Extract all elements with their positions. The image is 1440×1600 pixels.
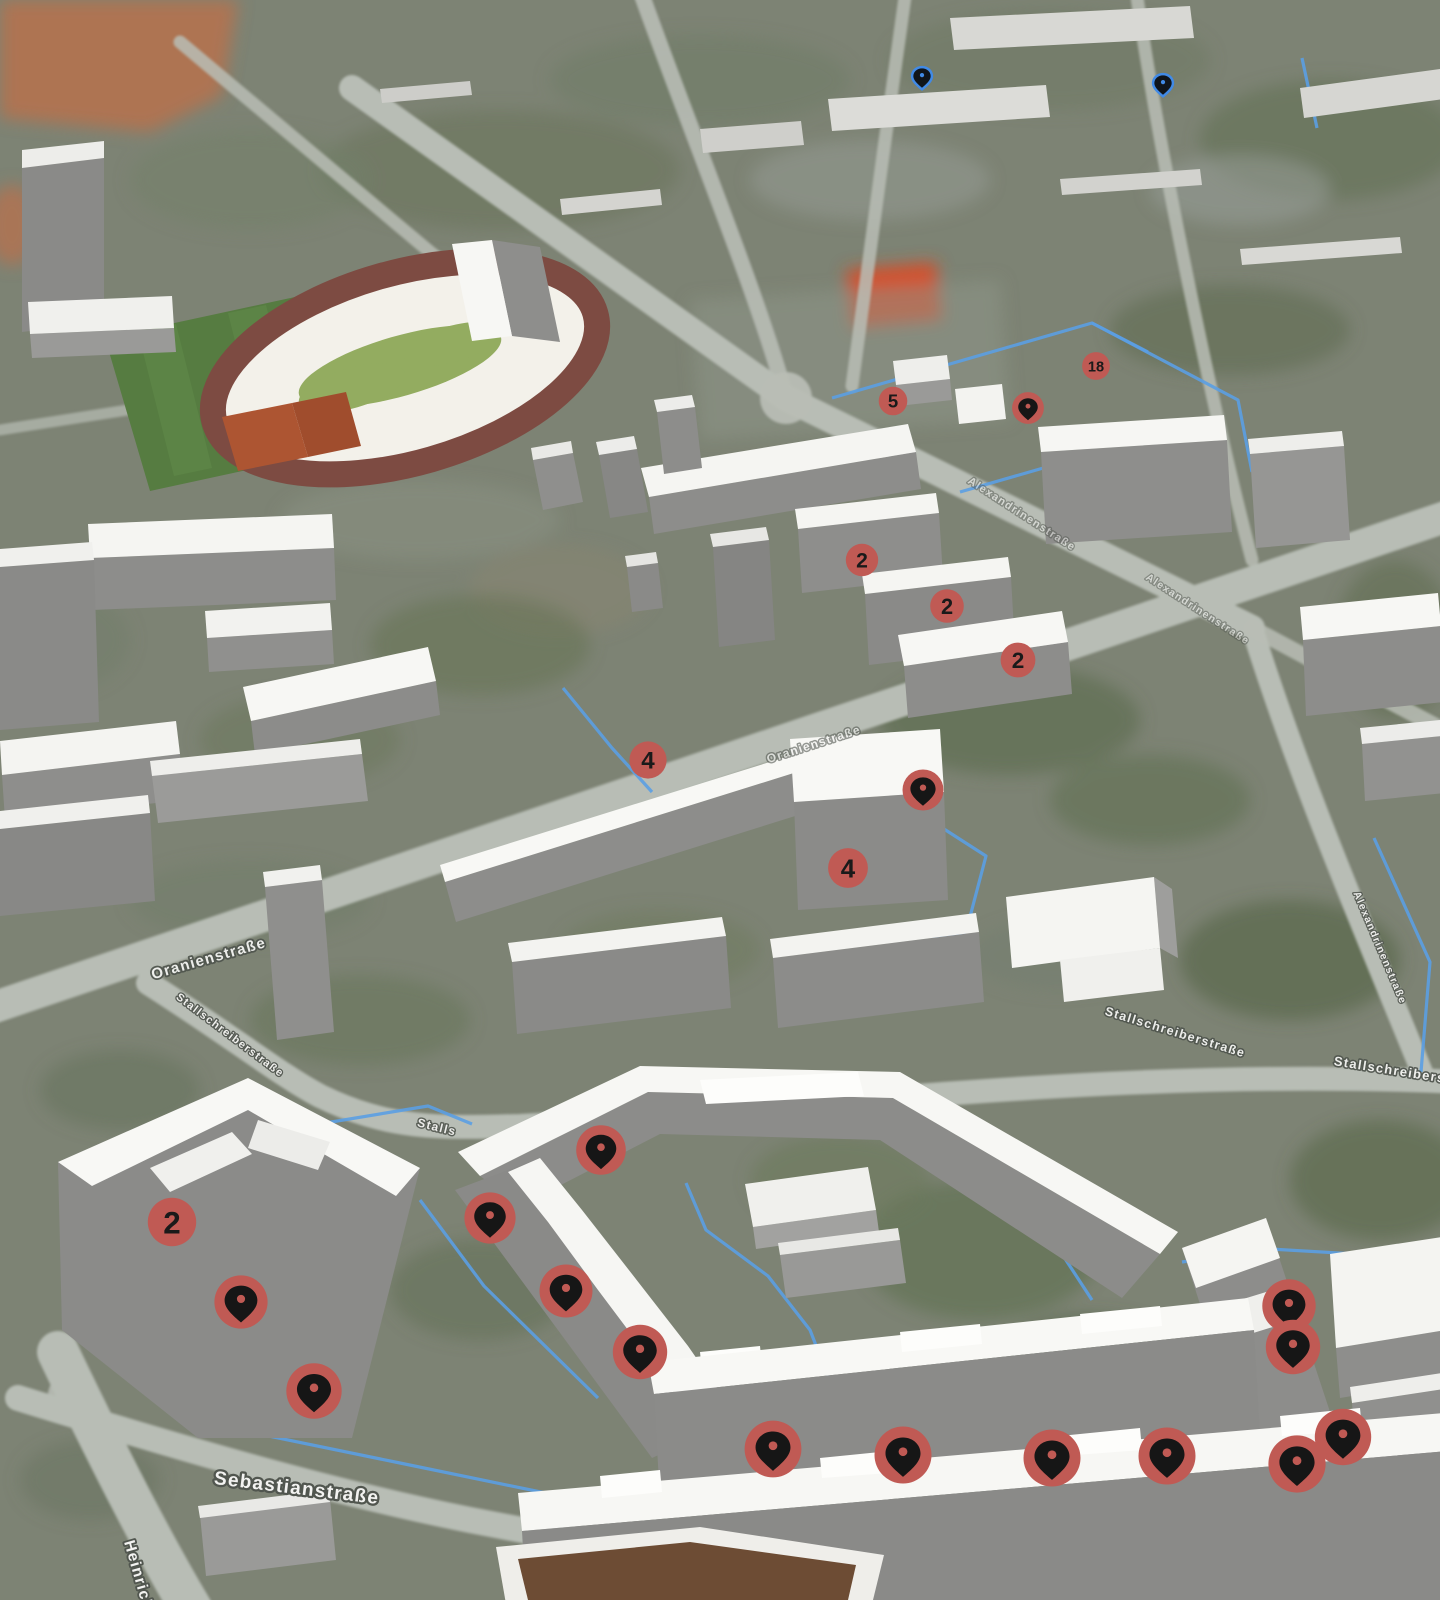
pin-marker[interactable] — [745, 1421, 802, 1478]
building-wall — [657, 407, 702, 474]
pin-dot — [636, 1345, 644, 1353]
pin-marker[interactable] — [875, 1427, 932, 1484]
pin-dot — [769, 1441, 778, 1450]
cluster-count: 2 — [1012, 648, 1025, 673]
pin-marker[interactable] — [214, 1275, 267, 1328]
building-roof — [955, 384, 1006, 424]
pin-dot — [1026, 404, 1031, 409]
ground-patch — [130, 130, 370, 230]
cluster-marker-4[interactable]: 4 — [828, 848, 868, 888]
blue-pin-dot — [920, 73, 924, 77]
cluster-count: 18 — [1088, 359, 1104, 375]
road-junction — [48, 1373, 92, 1417]
pin-marker[interactable] — [1012, 392, 1044, 424]
pin-dot — [1048, 1450, 1057, 1459]
map-viewport[interactable]: OranienstraßeOranienstraßeStallschreiber… — [0, 0, 1440, 1600]
cluster-count: 4 — [641, 748, 655, 775]
cluster-marker-18[interactable]: 18 — [1082, 352, 1110, 380]
pin-marker[interactable] — [1266, 1320, 1320, 1374]
pin-dot — [1293, 1456, 1302, 1465]
blue-pin-dot — [1161, 80, 1165, 84]
pin-dot — [1163, 1448, 1172, 1457]
building-roof — [28, 296, 174, 334]
building-wall — [0, 813, 155, 916]
pin-dot — [1289, 1340, 1297, 1348]
pin-marker[interactable] — [540, 1265, 593, 1318]
pin-dot — [1285, 1299, 1293, 1307]
building-wall — [90, 548, 336, 610]
pin-dot — [562, 1284, 570, 1292]
cluster-marker-4[interactable]: 4 — [629, 741, 666, 778]
pin-dot — [237, 1295, 245, 1303]
pin-marker[interactable] — [286, 1363, 341, 1418]
cluster-count: 4 — [841, 855, 856, 883]
pin-marker[interactable] — [613, 1325, 667, 1379]
ground-patch — [550, 35, 850, 125]
pin-dot — [1339, 1429, 1348, 1438]
cluster-marker-2[interactable]: 2 — [1001, 643, 1036, 678]
cluster-count: 2 — [163, 1205, 180, 1240]
building-wall — [1362, 736, 1440, 801]
pin-marker[interactable] — [903, 770, 944, 811]
cluster-marker-2[interactable]: 2 — [846, 544, 878, 576]
building-roof — [1330, 1237, 1440, 1348]
cluster-marker-2[interactable]: 2 — [930, 589, 964, 623]
building-wall — [1250, 446, 1350, 548]
pin-marker[interactable] — [1139, 1428, 1196, 1485]
pin-marker[interactable] — [1315, 1409, 1371, 1465]
pin-dot — [310, 1384, 319, 1393]
pin-marker[interactable] — [1024, 1430, 1081, 1487]
map-canvas[interactable]: OranienstraßeOranienstraßeStallschreiber… — [0, 0, 1440, 1600]
building-wall — [1303, 626, 1440, 716]
cluster-count: 5 — [888, 391, 898, 412]
cluster-count: 2 — [941, 594, 953, 619]
pin-dot — [920, 784, 926, 790]
pin-marker[interactable] — [576, 1125, 626, 1175]
cluster-count: 2 — [856, 550, 868, 573]
building-wall — [0, 560, 99, 730]
pin-dot — [597, 1143, 605, 1151]
building-wall — [1041, 440, 1232, 544]
cluster-marker-5[interactable]: 5 — [879, 387, 908, 416]
road-junction — [760, 372, 812, 424]
pin-marker[interactable] — [464, 1192, 515, 1243]
ground-patch — [1110, 285, 1350, 375]
building-wall — [627, 563, 663, 612]
pin-dot — [486, 1211, 494, 1219]
cluster-marker-2[interactable]: 2 — [148, 1198, 196, 1246]
pin-dot — [899, 1447, 908, 1456]
ground-patch — [1050, 755, 1250, 845]
building-wall — [713, 540, 775, 647]
building-wall — [265, 880, 334, 1040]
